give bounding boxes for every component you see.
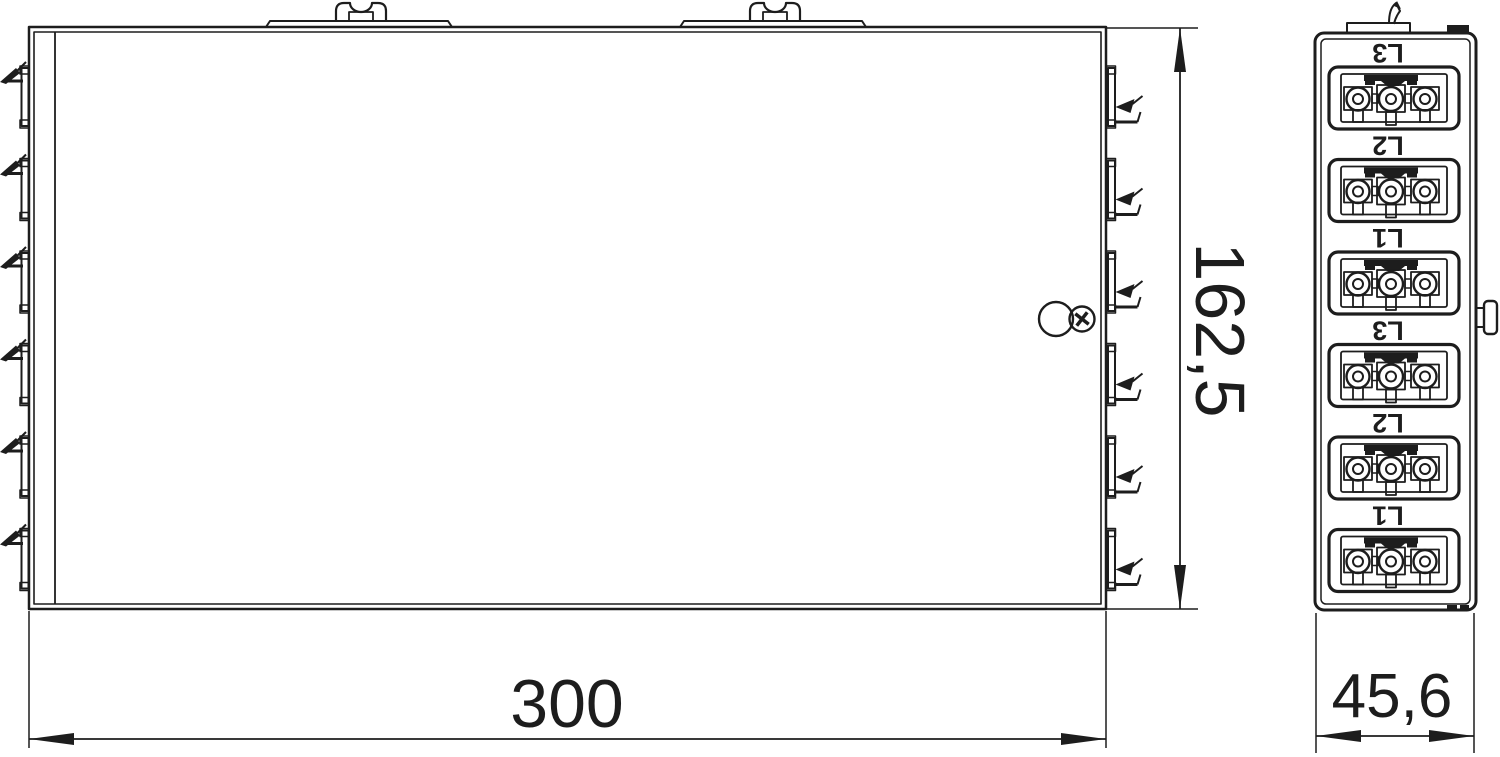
mounting-tab (750, 3, 800, 21)
phase-label: L2 (1372, 408, 1404, 438)
arrow-left-icon (1316, 730, 1361, 742)
bottom-notch (1460, 605, 1469, 610)
terminal-block (1329, 160, 1459, 222)
arrow-right-icon (1429, 730, 1474, 742)
dimension-width-value: 300 (510, 666, 623, 742)
snap-clip-right (1107, 66, 1143, 128)
snap-clip-right (1107, 529, 1143, 591)
snap-clip-right (1107, 344, 1143, 406)
enclosure-inner-outline (34, 32, 1101, 604)
dimension-height-value: 162,5 (1181, 242, 1259, 417)
mounting-tab (336, 3, 386, 21)
dimension-depth: 45,6 (1316, 613, 1474, 753)
snap-clip-left (0, 340, 29, 406)
phase-label: L3 (1372, 316, 1404, 346)
snap-clip-right (1107, 436, 1143, 498)
enclosure-outline (29, 27, 1106, 609)
terminal-block (1329, 345, 1459, 407)
top-notch (1447, 25, 1469, 32)
phase-label: L2 (1372, 131, 1404, 161)
screw-icon (1039, 302, 1095, 336)
bottom-notch (1447, 605, 1457, 610)
side-view: L3 L2 L1 L3 L2 L1 (1315, 1, 1497, 610)
snap-clip-left (0, 432, 29, 498)
arrow-right-icon (1061, 733, 1106, 745)
front-view (0, 3, 1143, 609)
arrow-left-icon (29, 733, 74, 745)
terminal-block (1329, 252, 1459, 314)
terminal-block (1329, 437, 1459, 499)
dimension-height: 162,5 (1106, 28, 1259, 609)
snap-clip-right (1107, 251, 1143, 313)
snap-clip-right (1107, 159, 1143, 221)
snap-clip-left (0, 62, 29, 128)
dimension-depth-value: 45,6 (1332, 662, 1453, 731)
terminal-block (1329, 67, 1459, 129)
dimension-width: 300 (29, 611, 1106, 748)
snap-clip-left (0, 155, 29, 221)
latch-prong-icon (1389, 1, 1401, 24)
side-knob (1476, 301, 1497, 334)
snap-clip-left (0, 525, 29, 591)
snap-clip-left (0, 247, 29, 313)
arrow-up-icon (1174, 28, 1186, 72)
phase-label: L1 (1372, 223, 1404, 253)
terminal-block (1329, 530, 1459, 592)
phase-label: L3 (1372, 38, 1404, 68)
phase-label: L1 (1372, 501, 1404, 531)
arrow-down-icon (1174, 565, 1186, 609)
technical-drawing: L3 L2 L1 L3 L2 L1 162,5 300 (0, 0, 1500, 757)
